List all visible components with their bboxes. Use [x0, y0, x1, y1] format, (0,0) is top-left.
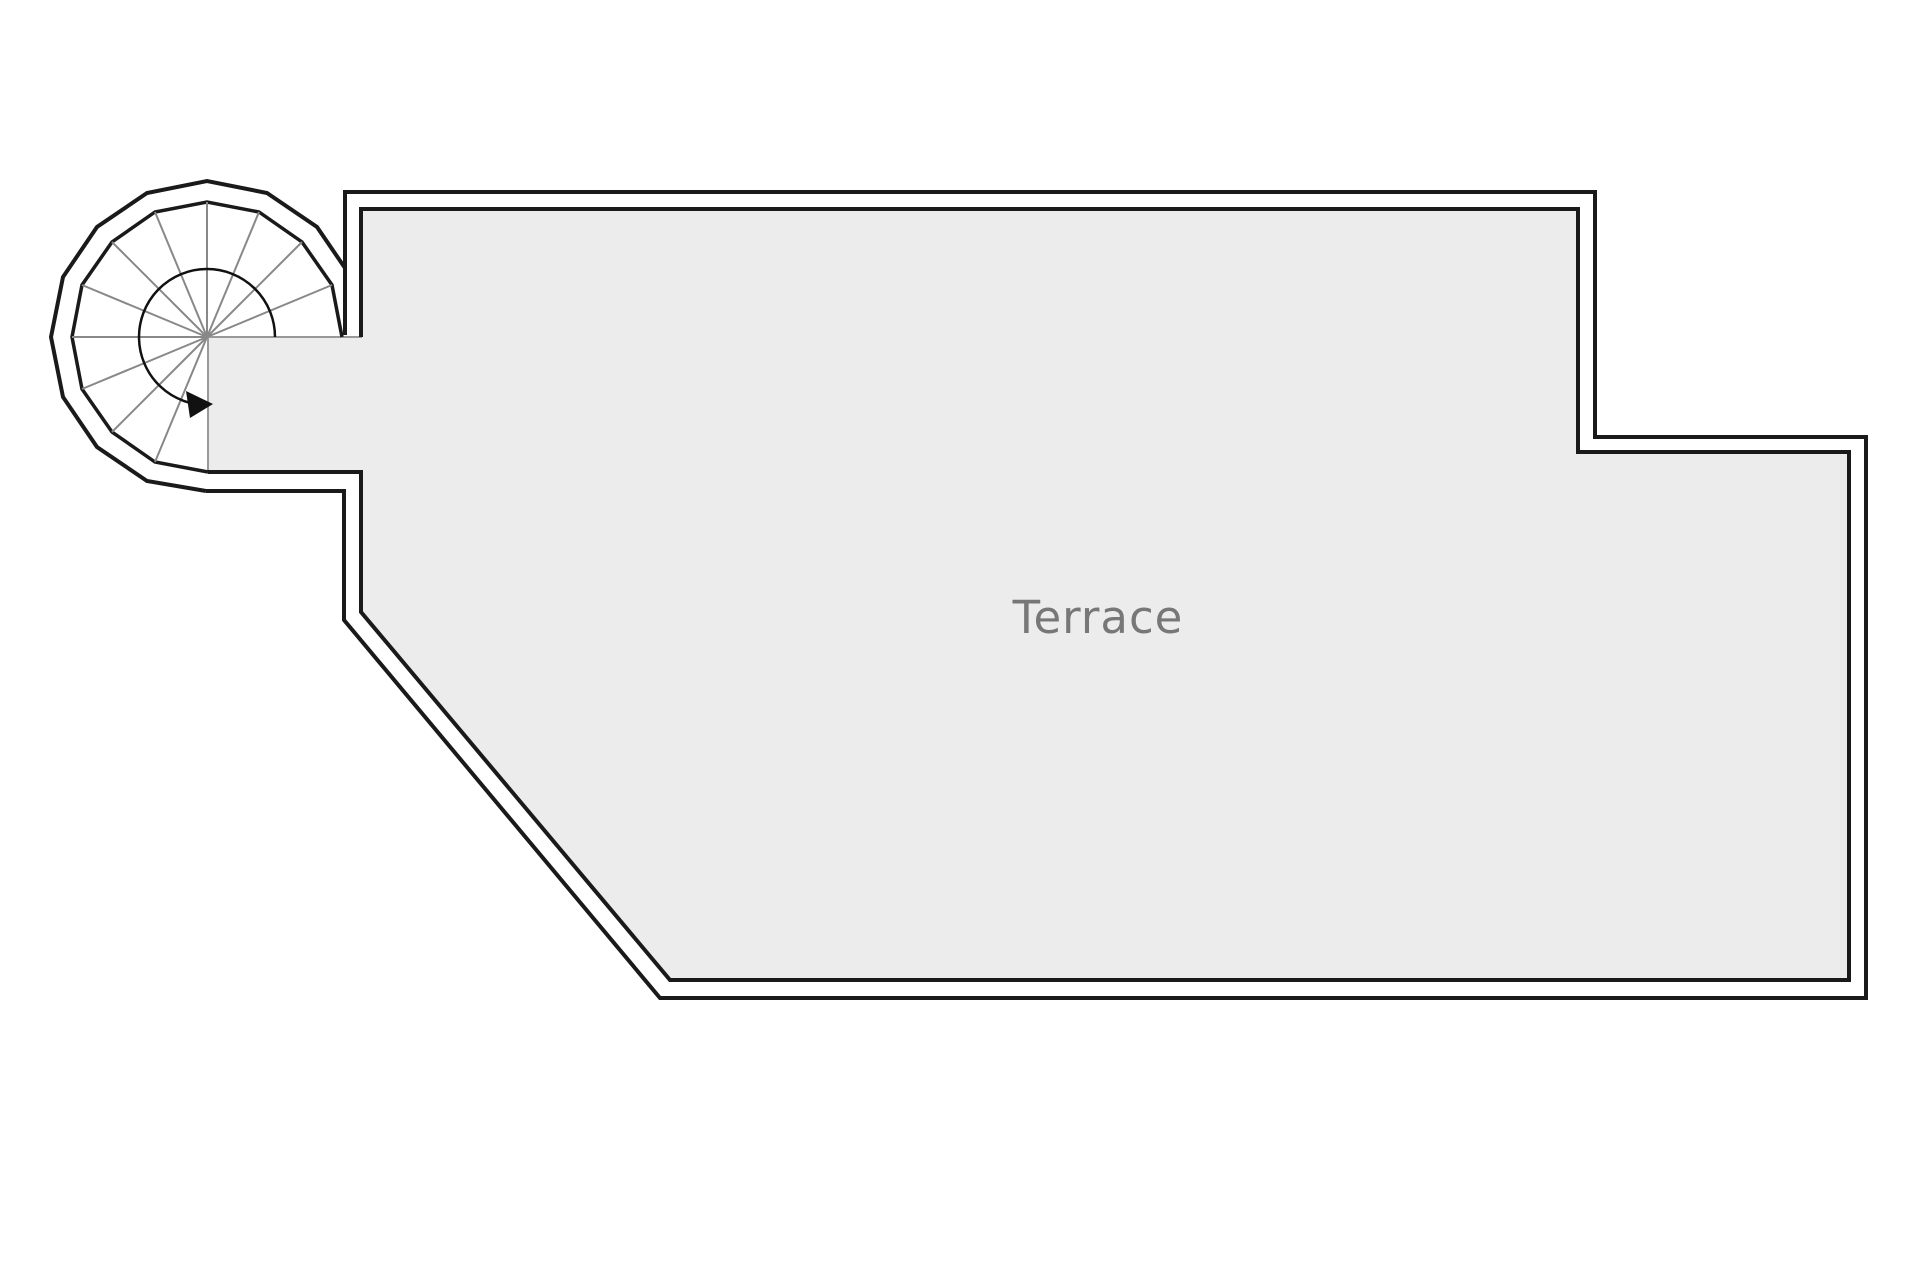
floor-plan-canvas: Terrace [0, 0, 1920, 1280]
floor-plan-page: Terrace [0, 0, 1920, 1280]
room-label: Terrace [1012, 591, 1184, 644]
